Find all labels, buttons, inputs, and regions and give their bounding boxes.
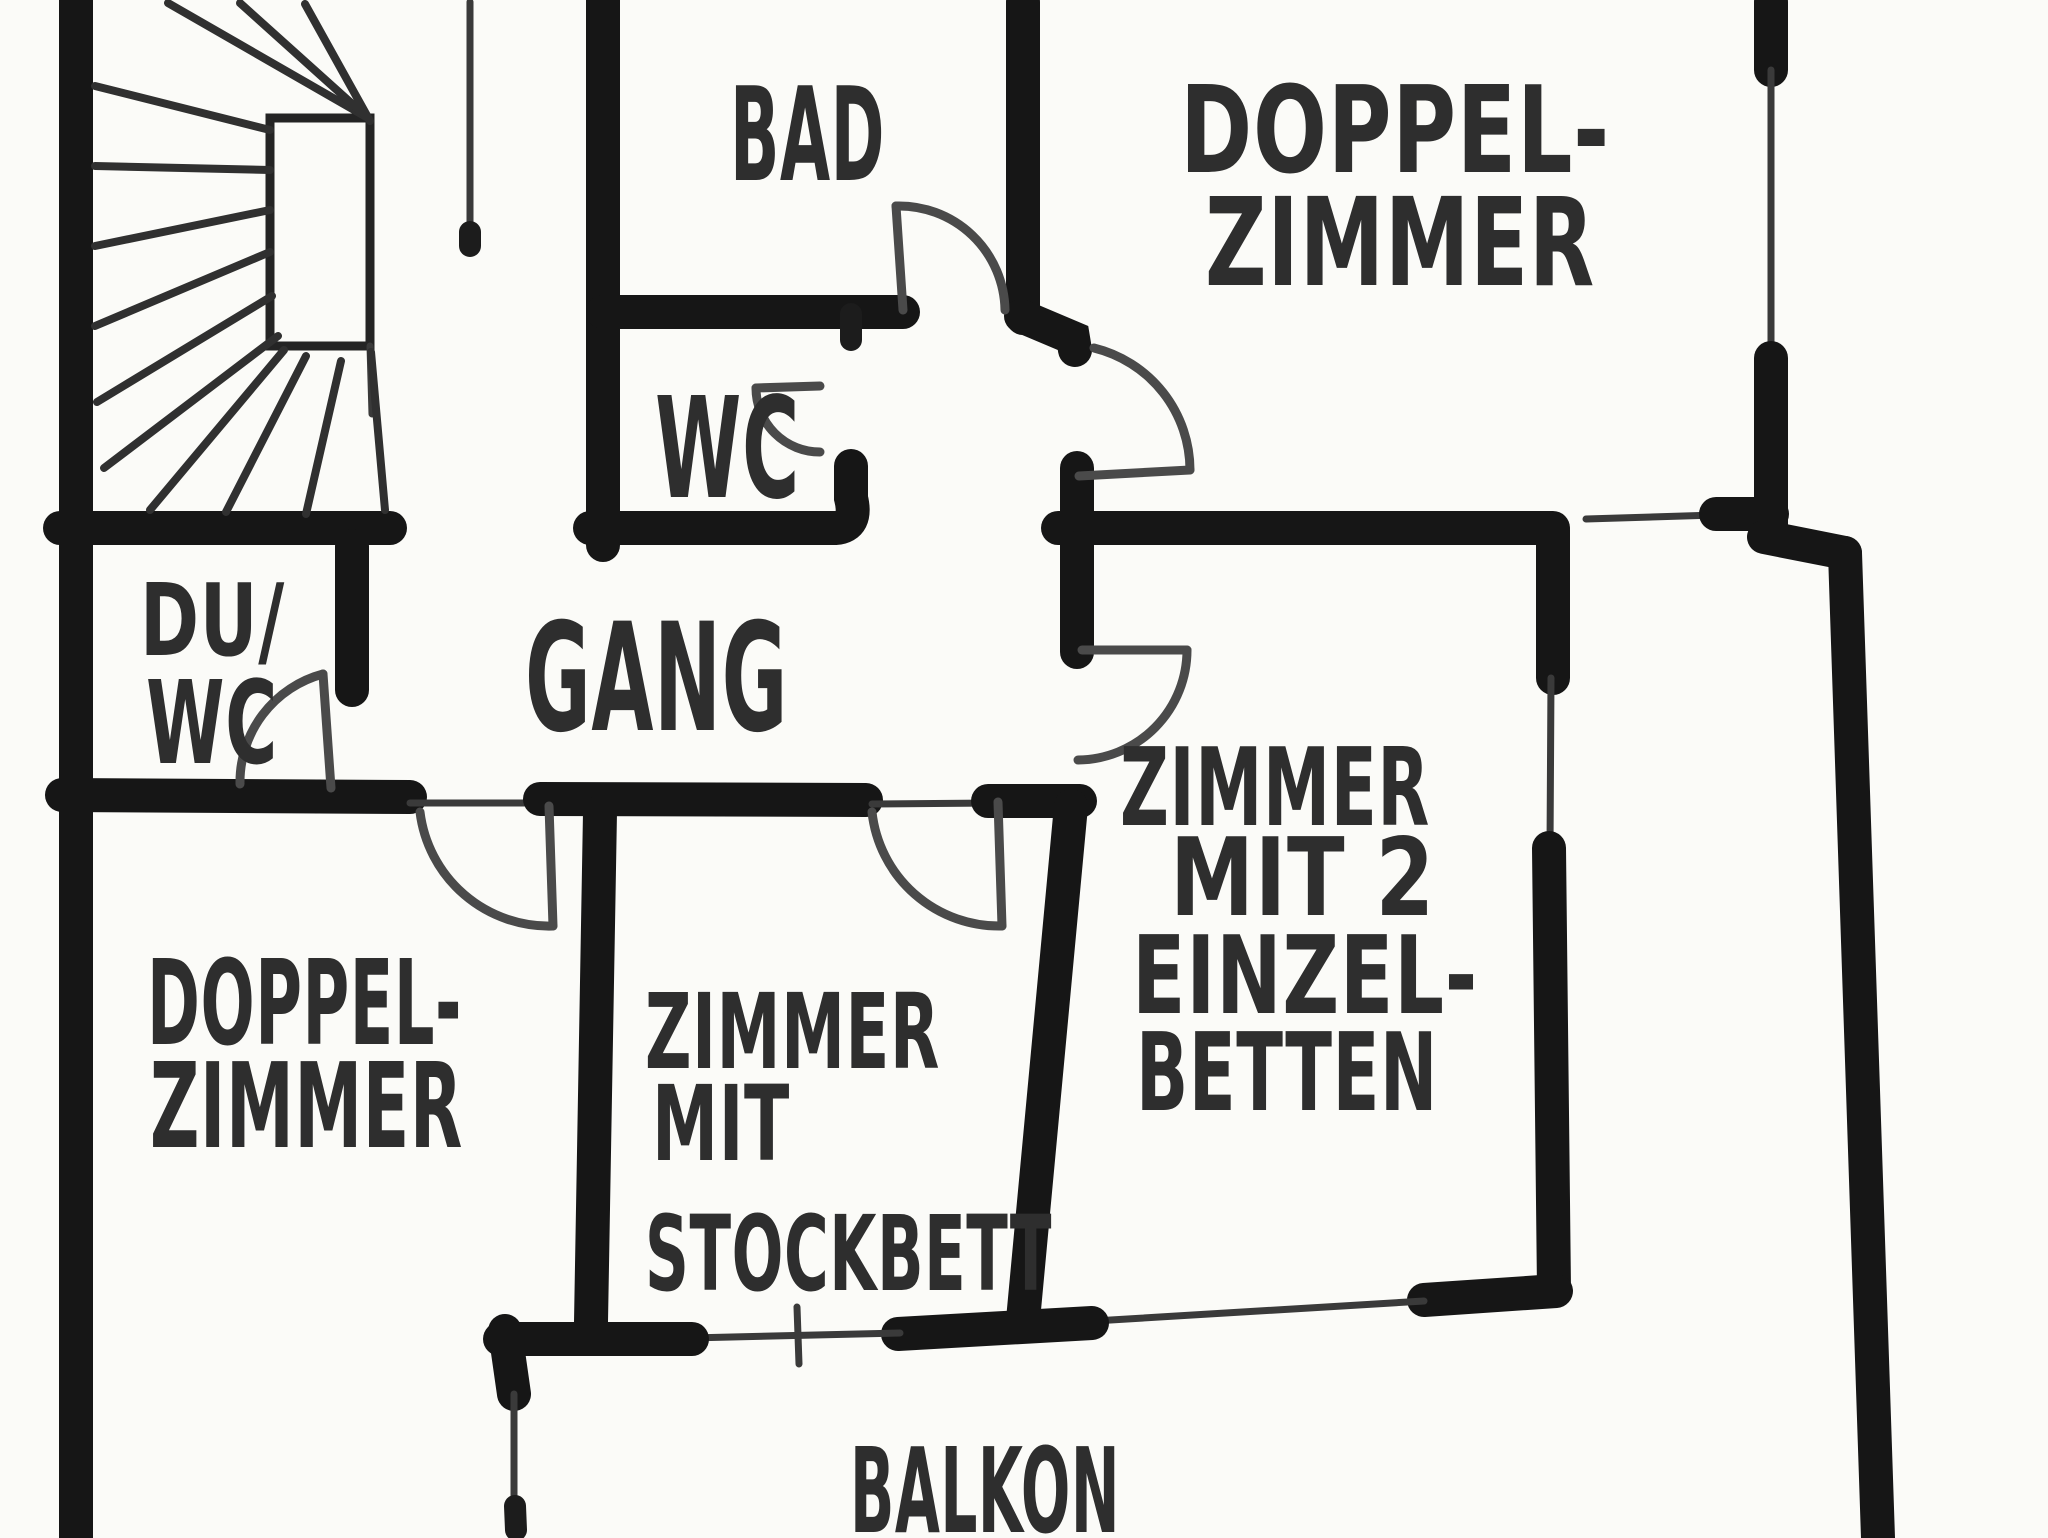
wall-south-mid-junction (898, 1323, 1092, 1334)
floor-plan-drawing: BAD DOPPEL- ZIMMER WC DU/ WC GANG ZIMMER… (0, 0, 2048, 1538)
label-stockbett-2: MIT (652, 1063, 790, 1185)
label-balkon: BALKON (850, 1422, 1120, 1538)
door-bad (896, 206, 1005, 310)
stair-tread (306, 361, 341, 514)
stair-tread (226, 356, 306, 512)
window-einzelbetten-south (1094, 1301, 1424, 1321)
balkon-rail-post (515, 1506, 516, 1530)
label-doppelzimmer-bottom-2: ZIMMER (150, 1037, 463, 1175)
staircase (95, 2, 470, 514)
stair-tread (104, 336, 278, 468)
stair-newel (270, 118, 370, 346)
balkon-door-tick (797, 1307, 799, 1364)
label-doppelzimmer-top-2: ZIMMER (1205, 172, 1595, 314)
wall-outer-right-low (1845, 553, 1878, 1538)
wall-doppelzimmer-top-jog (1021, 316, 1075, 350)
stair-tread (95, 210, 270, 246)
door-doppelzimmer-top (1079, 348, 1190, 476)
stair-tread (371, 352, 385, 510)
stair-tread (240, 3, 369, 119)
floor-plan-page: BAD DOPPEL- ZIMMER WC DU/ WC GANG ZIMMER… (0, 0, 2048, 1538)
label-gang: GANG (525, 592, 788, 766)
label-stockbett-3: STOCKBETT (645, 1193, 1052, 1315)
stair-tread (95, 166, 270, 170)
door-stockbett (872, 802, 1002, 926)
label-duwc-2: WC (146, 657, 278, 791)
window-spine-east (1586, 515, 1716, 519)
label-bad: BAD (730, 59, 885, 211)
wall-gang-south-west (62, 795, 410, 797)
door-doppelzimmer-bottom (420, 806, 553, 926)
window-einzelbetten-east (1550, 678, 1551, 848)
label-wc: WC (655, 368, 800, 531)
stair-tread (95, 86, 270, 130)
wall-einzelbetten-east-low (1549, 848, 1554, 1290)
wall-stockbett-west (591, 812, 600, 1322)
label-einzelbetten-4: BETTEN (1136, 1011, 1438, 1136)
wall-balkon-corner (505, 1331, 514, 1394)
wall-einzelbetten-south-east (1424, 1291, 1556, 1300)
